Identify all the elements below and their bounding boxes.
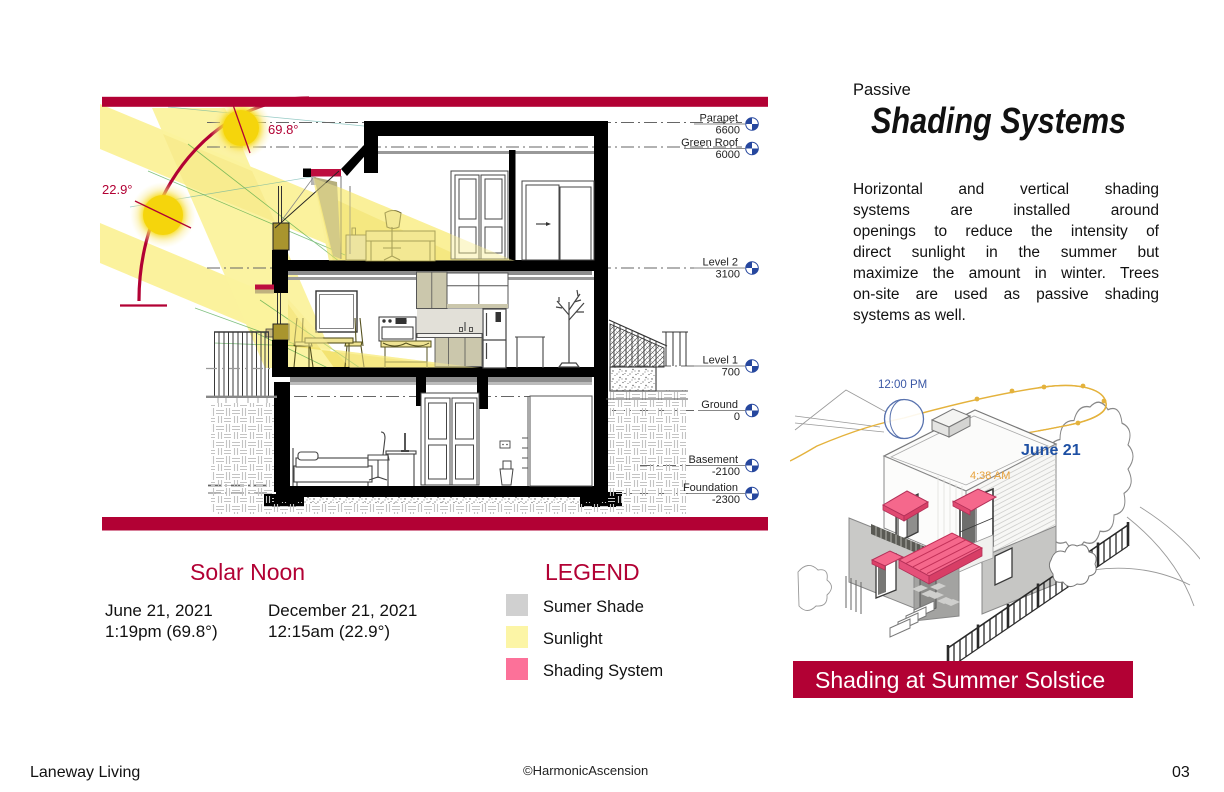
svg-text:June 21: June 21	[1021, 442, 1081, 459]
svg-text:Ground: Ground	[701, 399, 738, 411]
svg-text:3100: 3100	[716, 269, 740, 281]
svg-text:Foundation: Foundation	[683, 482, 738, 494]
svg-text:6000: 6000	[716, 149, 740, 161]
svg-text:0: 0	[734, 411, 740, 423]
svg-text:Green Roof: Green Roof	[681, 137, 739, 149]
svg-text:22.9°: 22.9°	[102, 182, 133, 197]
svg-text:700: 700	[722, 367, 740, 379]
svg-text:6600: 6600	[716, 125, 740, 137]
svg-text:12:00 PM: 12:00 PM	[878, 379, 927, 391]
svg-text:-2100: -2100	[712, 466, 740, 478]
svg-text:Parapet: Parapet	[699, 113, 738, 125]
svg-text:-2300: -2300	[712, 494, 740, 506]
svg-text:69.8°: 69.8°	[268, 122, 299, 137]
svg-text:Level 1: Level 1	[703, 355, 738, 367]
svg-text:4:38 AM: 4:38 AM	[970, 470, 1010, 482]
svg-text:Basement: Basement	[688, 454, 738, 466]
svg-text:Level 2: Level 2	[703, 257, 738, 269]
